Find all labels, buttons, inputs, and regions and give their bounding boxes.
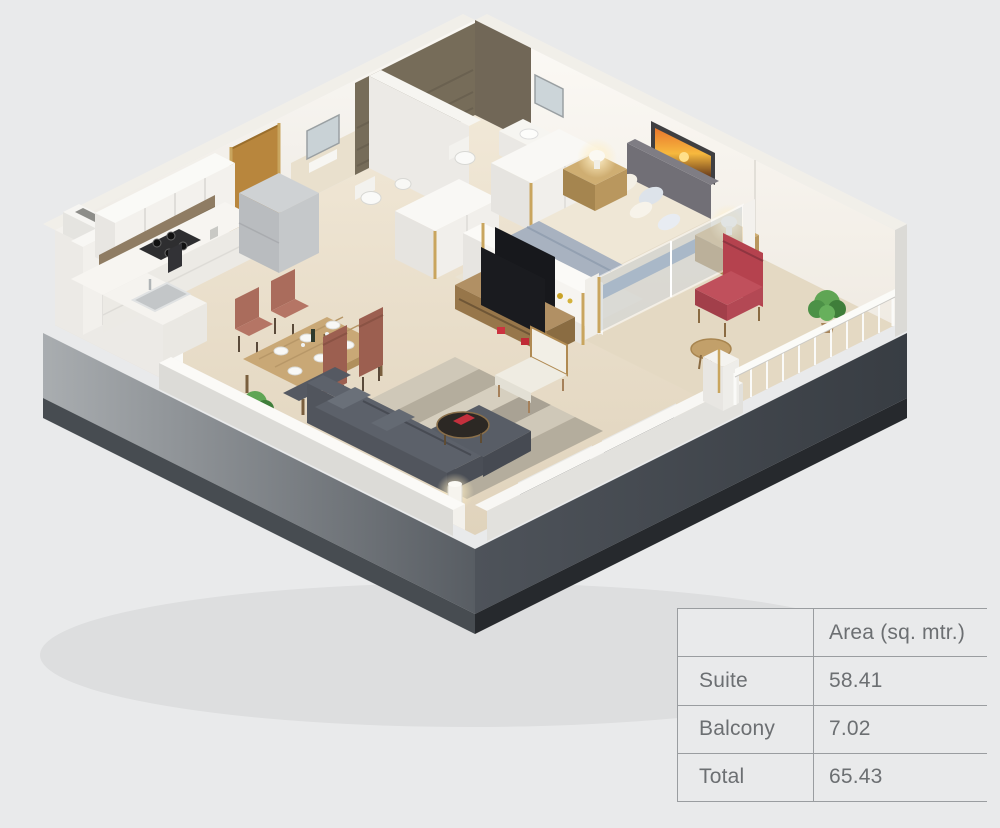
bidet-1 — [395, 179, 411, 190]
plate — [274, 347, 288, 355]
right-outer-wall-face — [895, 224, 907, 337]
refrigerator-box — [239, 173, 319, 273]
area-table-row-total-label: Total — [678, 754, 813, 801]
area-table-header-area: Area (sq. mtr.) — [814, 609, 987, 656]
balcony-wall-stub-2 — [585, 273, 599, 340]
plate — [288, 367, 302, 375]
gold-decor — [568, 299, 573, 304]
toilet-2 — [455, 152, 475, 165]
screenshot-root: Area (sq. mtr.) Suite 58.41 Balcony 7.02… — [0, 0, 1000, 828]
toilet-1 — [361, 192, 381, 205]
area-table: Area (sq. mtr.) Suite 58.41 Balcony 7.02… — [677, 608, 987, 802]
gold-decor — [557, 293, 563, 299]
area-table-row-balcony-value: 7.02 — [814, 706, 987, 753]
basin-2 — [520, 129, 538, 139]
area-table-row-total-value: 65.43 — [814, 754, 987, 801]
area-table-row-suite-value: 58.41 — [814, 657, 987, 704]
area-table-row-balcony-label: Balcony — [678, 706, 813, 753]
area-table-row-suite-label: Suite — [678, 657, 813, 704]
area-table-corner-cell — [678, 609, 813, 656]
sun — [679, 152, 689, 162]
red-decor — [521, 338, 529, 345]
red-decor — [497, 327, 505, 334]
wine-bottle — [311, 329, 315, 342]
plate — [326, 321, 340, 329]
glass — [301, 343, 305, 347]
